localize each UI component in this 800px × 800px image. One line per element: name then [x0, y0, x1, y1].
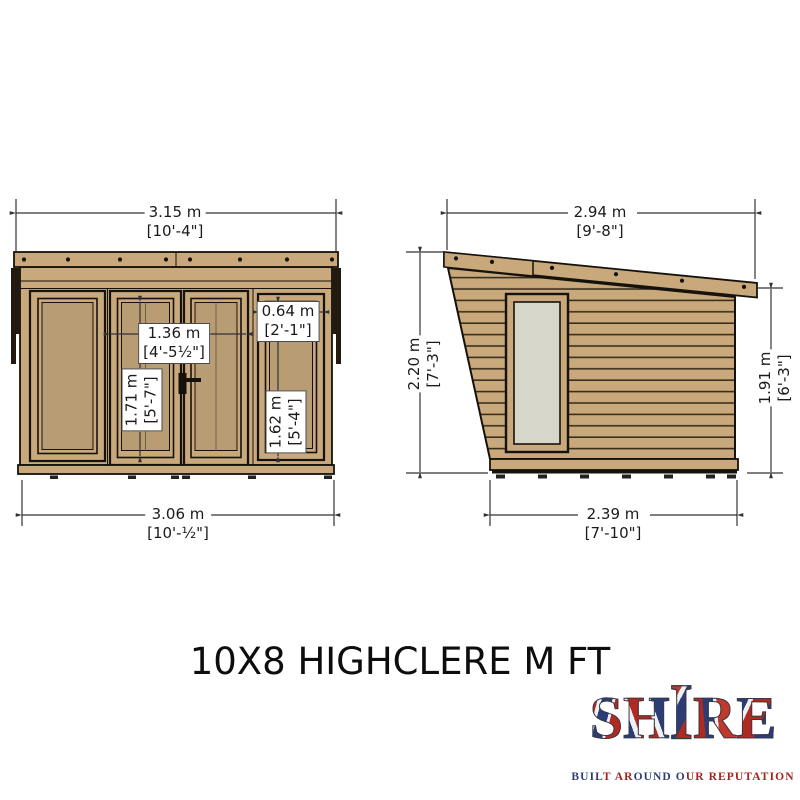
drawing-sheet: 3.15 m [10'-4"] 3.06 m [10'-½"] 1.36 m [… — [0, 0, 800, 800]
dim-side-height-right: 1.91 m [6'-3"] — [756, 350, 794, 407]
dim-imperial: [10'-½"] — [147, 524, 209, 543]
logo-letter: H — [623, 688, 670, 748]
side-base-feet — [496, 475, 736, 479]
dim-front-window-width: 0.64 m [2'-1"] — [257, 301, 320, 342]
dim-imperial: [2'-1"] — [262, 321, 315, 340]
dim-front-door-height: 1.71 m [5'-7"] — [122, 369, 163, 432]
left-roof-overhang — [11, 268, 20, 364]
dim-imperial: [7'-3"] — [424, 338, 443, 391]
front-base — [18, 465, 334, 474]
side-base — [490, 459, 738, 470]
dim-front-window-height: 1.62 m [5'-4"] — [266, 391, 307, 454]
dim-metric: 2.94 m — [574, 203, 627, 222]
dim-metric: 2.20 m — [405, 338, 424, 391]
side-wall-cladding — [448, 268, 735, 459]
dim-imperial: [5'-7"] — [142, 374, 161, 427]
dim-side-height-left: 2.20 m [7'-3"] — [405, 336, 443, 393]
dim-imperial: [10'-4"] — [147, 222, 204, 241]
dim-metric: 3.06 m — [147, 505, 209, 524]
dim-imperial: [6'-3"] — [775, 352, 794, 405]
dim-metric: 1.62 m — [267, 396, 286, 449]
dim-imperial: [5'-4"] — [286, 396, 305, 449]
dim-imperial: [9'-8"] — [574, 222, 627, 241]
front-left-window-panel — [30, 291, 105, 461]
dim-metric: 0.64 m — [262, 302, 315, 321]
dim-imperial: [7'-10"] — [585, 524, 642, 543]
shire-logo: S H I R E BUILT AROUND OUR REPUTATION — [570, 688, 796, 783]
logo-letter: R — [693, 688, 736, 748]
dim-metric: 3.15 m — [147, 203, 204, 222]
dim-front-width-top: 3.15 m [10'-4"] — [145, 203, 206, 241]
logo-letter: E — [736, 688, 776, 748]
shire-logo-wordmark: S H I R E — [570, 688, 796, 770]
logo-letter: S — [590, 688, 623, 748]
logo-letter: I — [670, 672, 693, 752]
front-base-feet — [50, 476, 332, 480]
side-window — [506, 294, 568, 452]
dim-side-depth-bottom: 2.39 m [7'-10"] — [583, 505, 644, 543]
dim-front-door-width: 1.36 m [4'-5½"] — [138, 323, 210, 364]
dim-metric: 1.36 m — [143, 324, 205, 343]
dim-metric: 1.91 m — [756, 352, 775, 405]
right-roof-overhang — [332, 268, 341, 364]
dim-imperial: [4'-5½"] — [143, 343, 205, 362]
side-elevation — [444, 252, 757, 479]
dim-side-depth-top: 2.94 m [9'-8"] — [572, 203, 629, 241]
dim-metric: 1.71 m — [123, 374, 142, 427]
dim-metric: 2.39 m — [585, 505, 642, 524]
dim-front-width-bottom: 3.06 m [10'-½"] — [145, 505, 211, 543]
logo-tagline: BUILT AROUND OUR REPUTATION — [570, 771, 796, 783]
